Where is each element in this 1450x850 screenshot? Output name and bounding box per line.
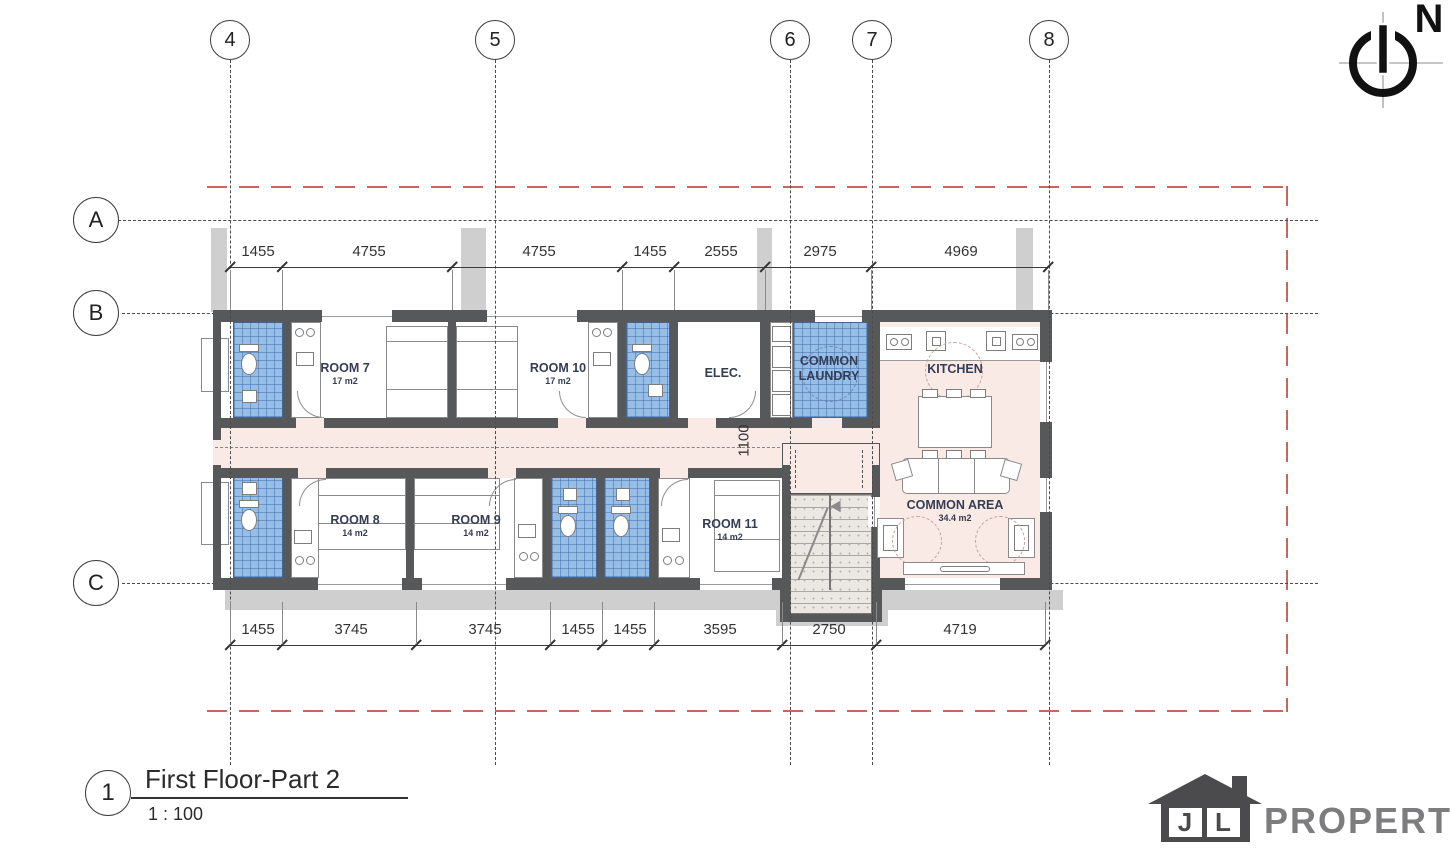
grid-line-7 [872,60,873,765]
grid-line-8 [1049,60,1050,765]
dim-witness-line [602,602,603,644]
landing-door-mark [862,450,863,488]
grid-bubble-B: B [73,290,119,336]
window [815,310,862,322]
sink-icon [563,488,577,501]
dim-witness-line [452,270,453,310]
boundary-line-bottom [207,710,1288,712]
grid-line-5 [495,60,496,765]
wall [543,475,551,578]
logo-wordmark: PROPERTY [1264,800,1450,842]
hob-icon [530,552,539,561]
toilet-icon [634,353,650,375]
staircase [790,494,872,614]
bathroom-room8 [233,475,283,578]
window [318,578,402,590]
wall [283,322,291,418]
room-label-common-area: COMMON AREA34.4 m2 [905,498,1005,524]
toilet-tank [239,344,259,352]
landing-door-mark [795,450,796,488]
bed-room7 [386,326,448,418]
window [322,310,392,322]
grid-bubble-A: A [73,197,119,243]
floor-plan-sheet: 4 5 6 7 8 A B C 1455 4755 4755 1455 2555… [0,0,1450,850]
tv-bench [903,562,1025,575]
washer-icon [772,326,791,342]
wall-laundry-kitchen [868,315,880,428]
grid-bubble-8: 8 [1029,20,1069,60]
toilet-tank [239,500,259,508]
dim-bot-1: 1455 [226,621,290,638]
door-opening [298,468,326,478]
window [1040,478,1052,512]
window [1040,362,1052,422]
dim-witness-line [550,602,551,644]
building-shadow [225,590,1063,610]
sink-icon [616,488,630,501]
room-label-laundry: COMMON LAUNDRY [794,354,864,384]
dim-witness-line [1045,602,1046,644]
pier-shadow [1016,228,1033,312]
wall [650,475,658,578]
grid-line-4 [230,60,231,765]
room-label-8: ROOM 814 m2 [310,513,400,539]
bed-room10 [456,326,518,418]
wall-left-edge-upper [213,310,221,440]
toilet-tank [611,506,631,514]
dim-bot-3: 3745 [453,621,517,638]
window [422,578,506,590]
pier-shadow [461,228,486,312]
north-label: N [1415,0,1444,41]
washer-icon [772,394,791,416]
grid-bubble-7: 7 [852,20,892,60]
toilet-tank [632,344,652,352]
wall [618,322,626,418]
hob-icon [603,328,612,337]
grid-bubble-4: 4 [210,20,250,60]
room-label-11: ROOM 1114 m2 [685,517,775,543]
window [487,310,577,322]
logo-letter-j: J [1178,807,1192,837]
hob-icon [295,328,304,337]
boundary-line-top [207,186,1288,188]
dim-bot-5: 1455 [598,621,662,638]
window [905,578,1000,590]
dim-bot-2: 3745 [319,621,383,638]
toilet-icon [241,509,257,531]
dim-witness-line [230,270,231,310]
sink-icon [242,482,257,495]
dim-witness-line [876,602,877,644]
stair-center-rail [829,494,831,590]
room-label-10: ROOM 1017 m2 [513,361,603,387]
chair-icon [922,389,938,398]
door-swing [559,391,586,418]
dim-witness-line [674,270,675,310]
door-opening [660,468,688,478]
grid-line-6 [790,60,791,765]
dim-witness-line [1048,270,1049,310]
north-arrow-icon: N [1337,0,1449,110]
grid-line-A [118,220,1318,221]
wall [448,322,456,418]
dim-witness-line [622,270,623,310]
toilet-icon [560,515,576,537]
wall-left-edge-lower [213,465,221,590]
dim-witness-line [782,602,783,644]
dim-top-2: 4755 [337,243,401,260]
logo-house-icon: J L [1148,768,1268,844]
dim-corridor-width: 1100 [736,413,753,469]
grid-bubble-6: 6 [770,20,810,60]
toilet-icon [613,515,629,537]
door-opening [488,468,516,478]
dim-top-4: 1455 [618,243,682,260]
cooktop-icon [886,334,912,350]
cooktop-icon [1012,334,1038,350]
hob-icon [295,556,304,565]
jl-property-logo: J L PROPERTY [1148,768,1448,846]
washer-icon [772,370,791,392]
dim-top-1: 1455 [226,243,290,260]
chair-icon [946,389,962,398]
dim-bot-7: 2750 [797,621,861,638]
room-label-kitchen: KITCHEN [910,362,1000,377]
dimension-line-bottom [230,645,1045,646]
sink-icon [662,528,680,542]
stair-landing [782,443,880,494]
toilet-tank [558,506,578,514]
dining-table [918,396,992,448]
room-label-elec: ELEC. [678,366,768,381]
dim-witness-line [282,270,283,310]
logo-letter-l: L [1215,807,1231,837]
dim-bot-6: 3595 [688,621,752,638]
hob-icon [675,556,684,565]
kitchen-sink-icon [986,331,1006,351]
dim-witness-line [765,270,766,310]
corridor-zone [213,428,880,468]
window [700,578,772,590]
door-opening [688,418,716,428]
room-label-7: ROOM 717 m2 [300,361,390,387]
dimension-line-top [230,267,1048,268]
toilet-icon [241,353,257,375]
hob-icon [592,328,601,337]
wall [283,475,291,578]
hob-icon [663,556,672,565]
door-opening [296,418,324,428]
dim-top-3: 4755 [507,243,571,260]
detail-number-bubble: 1 [85,770,131,816]
grid-bubble-C: C [73,560,119,606]
dim-witness-line [230,602,231,644]
wall-room11-stair [782,465,790,590]
door-opening [558,418,586,428]
room-label-9: ROOM 914 m2 [431,513,521,539]
hob-icon [519,552,528,561]
dim-top-5: 2555 [689,243,753,260]
corridor-centerline [215,447,780,448]
grid-bubble-5: 5 [475,20,515,60]
sink-icon [648,384,663,397]
chair-icon [970,389,986,398]
sofa [902,458,1010,494]
exterior-wall-right [1040,310,1052,590]
wall [597,475,604,578]
drawing-title: First Floor-Part 2 [145,764,340,795]
hob-icon [306,328,315,337]
dim-witness-line [871,270,872,310]
washer-icon [772,346,791,368]
title-underline [131,797,408,799]
hob-icon [306,556,315,565]
sink-icon [242,390,257,403]
drawing-scale: 1 : 100 [148,804,203,825]
dim-top-7: 4969 [929,243,993,260]
wall [670,322,678,418]
dim-top-6: 2975 [788,243,852,260]
dim-bot-8: 4719 [928,621,992,638]
dim-witness-line [654,602,655,644]
bathroom-room7 [233,322,283,418]
dim-witness-line [416,602,417,644]
dim-witness-line [282,602,283,644]
boundary-line-right [1286,186,1288,712]
door-opening [812,418,842,428]
wall [406,475,414,578]
